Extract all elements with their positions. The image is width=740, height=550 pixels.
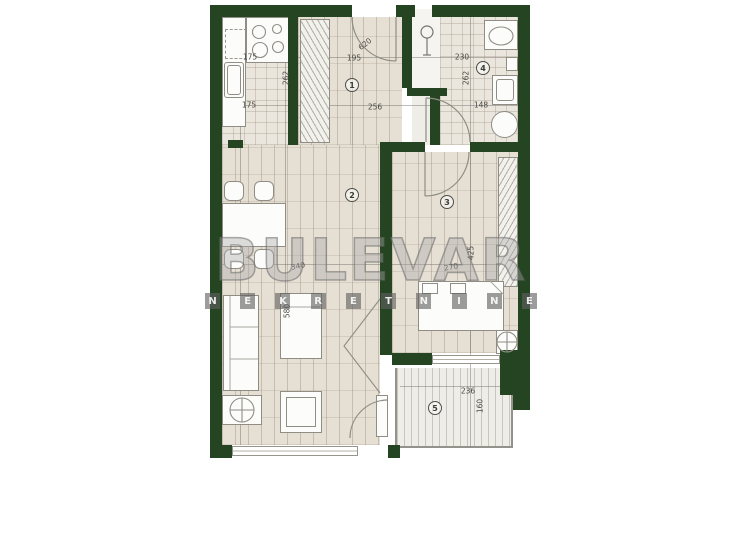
watermark-letter: N bbox=[416, 293, 431, 309]
room-badge-hallway: 1 bbox=[345, 78, 359, 92]
room-badge-terrace: 5 bbox=[428, 401, 442, 415]
dim-terrace-side: 160 bbox=[476, 399, 485, 413]
dim-terrace-width: 236 bbox=[461, 387, 475, 396]
sofa-cushion-lines bbox=[230, 296, 320, 390]
floor-plan-canvas: 175 262 175 620 195 256 230 262 148 340 … bbox=[0, 0, 740, 550]
dim-kitchen-bottom: 175 bbox=[242, 101, 256, 110]
watermark-letter: E bbox=[346, 293, 361, 309]
watermark-subtitle: N E K R E T N I N E bbox=[205, 293, 537, 309]
dim-bath-top: 230 bbox=[455, 53, 469, 62]
balcony-door-arc bbox=[350, 400, 388, 438]
watermark-letter: K bbox=[275, 293, 290, 309]
dim-kitchen-side: 262 bbox=[282, 71, 291, 85]
watermark-letter: N bbox=[205, 293, 220, 309]
dim-hall-top: 195 bbox=[347, 54, 361, 63]
watermark-letter: R bbox=[311, 293, 326, 309]
fan-coil-icon bbox=[497, 332, 517, 352]
fan-coil-icon bbox=[230, 398, 254, 422]
bathroom-sink-icon bbox=[489, 27, 513, 45]
room-badge-bathroom: 4 bbox=[476, 61, 490, 75]
bathroom-door-arc bbox=[426, 98, 470, 142]
watermark-letter: I bbox=[452, 293, 467, 309]
watermark-brand: BULEVAR bbox=[202, 231, 540, 289]
dim-hall-width: 256 bbox=[368, 103, 382, 112]
room-badge-living: 2 bbox=[345, 188, 359, 202]
open-door-mark bbox=[344, 299, 380, 393]
watermark-letter: N bbox=[487, 293, 502, 309]
bedroom-door-arc bbox=[425, 152, 469, 196]
dim-bath-side: 262 bbox=[462, 71, 471, 85]
dim-kitchen-top: 175 bbox=[243, 53, 257, 62]
dim-bath-width: 148 bbox=[474, 101, 488, 110]
room-badge-bedroom: 3 bbox=[440, 195, 454, 209]
watermark-letter: E bbox=[240, 293, 255, 309]
shower-icon bbox=[421, 26, 433, 55]
watermark-letter: E bbox=[522, 293, 537, 309]
watermark-letter: T bbox=[381, 293, 396, 309]
